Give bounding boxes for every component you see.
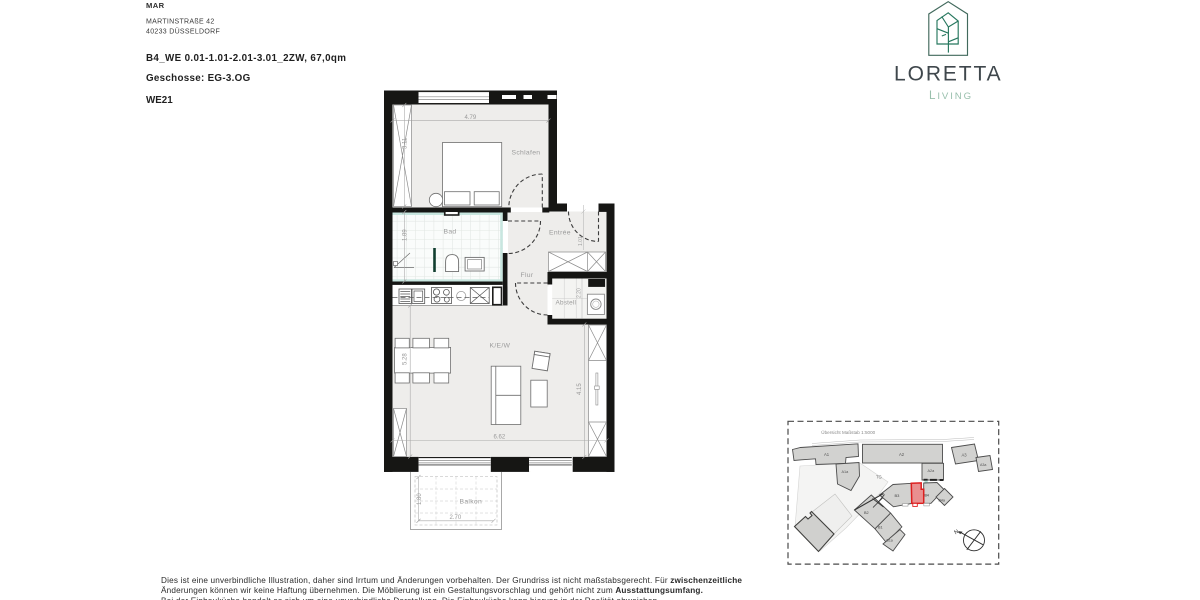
svg-text:WE21: WE21 bbox=[146, 95, 173, 106]
svg-text:Flur: Flur bbox=[521, 272, 534, 279]
svg-text:Entrée: Entrée bbox=[549, 230, 571, 237]
svg-text:A3a: A3a bbox=[980, 463, 986, 467]
svg-text:4.79: 4.79 bbox=[465, 115, 477, 121]
svg-text:Balkon: Balkon bbox=[460, 499, 483, 506]
svg-text:MARTINSTRAßE 42: MARTINSTRAßE 42 bbox=[146, 19, 215, 26]
svg-text:4.15: 4.15 bbox=[577, 383, 583, 395]
svg-text:A3: A3 bbox=[962, 453, 968, 458]
svg-text:B4: B4 bbox=[925, 494, 929, 498]
svg-text:2.20: 2.20 bbox=[577, 288, 583, 298]
svg-text:LIVING: LIVING bbox=[929, 89, 973, 102]
svg-text:6.62: 6.62 bbox=[494, 435, 506, 441]
svg-text:B2: B2 bbox=[864, 511, 869, 515]
svg-text:3.11: 3.11 bbox=[403, 137, 409, 149]
svg-text:B1: B1 bbox=[878, 526, 883, 530]
svg-text:N: N bbox=[954, 529, 961, 536]
svg-text:LORETTA: LORETTA bbox=[894, 63, 1003, 86]
svg-text:5.28: 5.28 bbox=[403, 353, 409, 365]
svg-text:Geschosse: EG-3.OG: Geschosse: EG-3.OG bbox=[146, 73, 251, 84]
svg-text:TG: TG bbox=[876, 475, 882, 480]
svg-text:1.01: 1.01 bbox=[578, 236, 584, 246]
svg-text:Schlafen: Schlafen bbox=[512, 150, 541, 157]
svg-text:B4_WE 0.01-1.01-2.01-3.01_2ZW,: B4_WE 0.01-1.01-2.01-3.01_2ZW, 67,0qm bbox=[146, 53, 346, 64]
svg-text:Bei der Einbauküche handelt es: Bei der Einbauküche handelt es sich um e… bbox=[161, 597, 660, 600]
svg-text:Übersicht Maßstab 1:5000: Übersicht Maßstab 1:5000 bbox=[821, 429, 875, 435]
svg-text:40233 DÜSSELDORF: 40233 DÜSSELDORF bbox=[146, 28, 220, 36]
svg-text:B4a: B4a bbox=[939, 499, 945, 503]
svg-text:1.89: 1.89 bbox=[403, 229, 409, 241]
svg-text:Dies ist eine unverbindliche I: Dies ist eine unverbindliche Illustratio… bbox=[161, 575, 742, 585]
svg-text:A1a: A1a bbox=[842, 470, 850, 474]
svg-text:Bad: Bad bbox=[444, 229, 457, 236]
svg-text:A1: A1 bbox=[824, 452, 830, 457]
svg-text:Abstell: Abstell bbox=[556, 300, 577, 307]
svg-text:B3: B3 bbox=[895, 493, 901, 498]
svg-text:A2a: A2a bbox=[928, 469, 936, 473]
svg-text:2.70: 2.70 bbox=[450, 515, 462, 521]
svg-text:A2: A2 bbox=[899, 452, 905, 457]
svg-text:Änderungen können wir keine Ha: Änderungen können wir keine Haftung über… bbox=[161, 585, 703, 595]
svg-text:1.80: 1.80 bbox=[417, 493, 423, 505]
svg-text:K/E/W: K/E/W bbox=[490, 343, 511, 350]
svg-text:MAR: MAR bbox=[146, 1, 165, 10]
svg-text:B1a: B1a bbox=[887, 539, 893, 543]
